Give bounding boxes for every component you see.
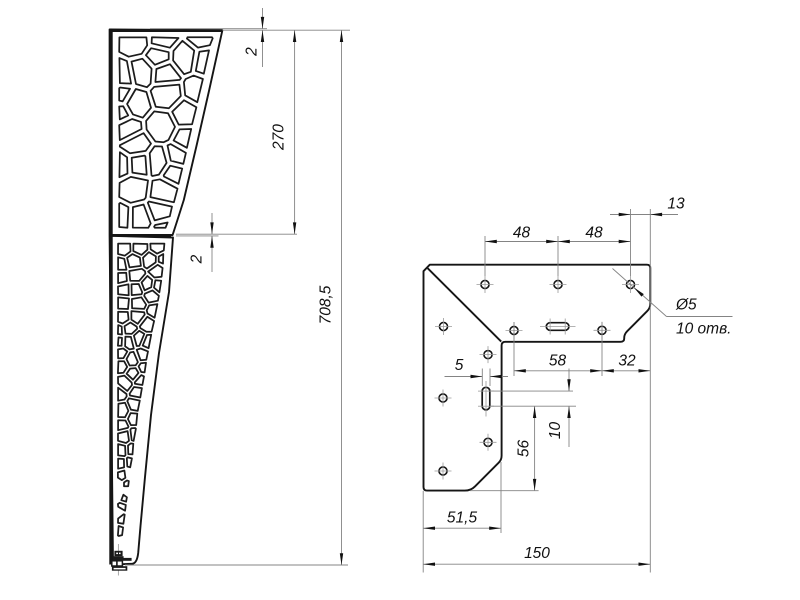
svg-text:5: 5	[455, 357, 464, 374]
svg-text:10 отв.: 10 отв.	[676, 321, 731, 338]
svg-text:48: 48	[585, 225, 603, 242]
svg-text:Ø5: Ø5	[675, 297, 697, 314]
svg-text:708,5: 708,5	[318, 285, 335, 324]
svg-text:56: 56	[516, 440, 533, 458]
svg-text:2: 2	[244, 47, 261, 57]
svg-text:270: 270	[271, 124, 288, 151]
svg-text:10: 10	[547, 422, 564, 440]
svg-text:13: 13	[667, 196, 685, 213]
svg-text:2: 2	[189, 254, 206, 264]
svg-text:48: 48	[513, 225, 531, 242]
svg-text:58: 58	[549, 353, 567, 370]
svg-text:150: 150	[524, 545, 550, 562]
svg-text:51,5: 51,5	[447, 510, 478, 527]
svg-text:32: 32	[618, 353, 636, 370]
